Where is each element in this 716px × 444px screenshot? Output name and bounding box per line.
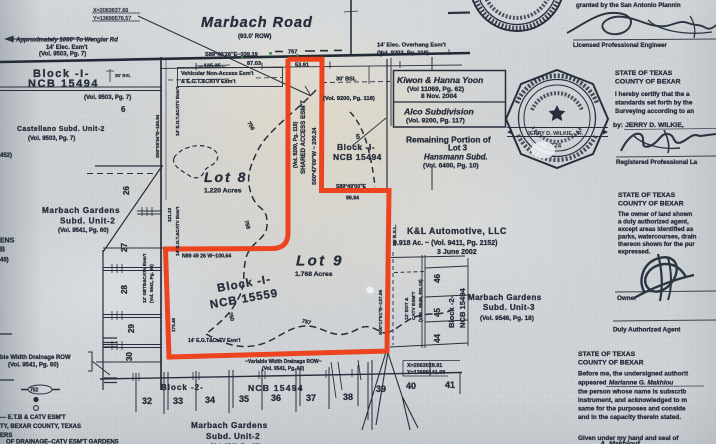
svg-text:45: 45 (433, 308, 442, 317)
svg-text:Marbach Gardens: Marbach Gardens (468, 293, 542, 302)
svg-text:STATE OF TEXAS: STATE OF TEXAS (615, 70, 673, 77)
svg-text:26: 26 (122, 186, 131, 195)
svg-text:30' BSL: 30' BSL (336, 77, 357, 83)
svg-text:a duly authorized agent,: a duly authorized agent, (618, 219, 689, 226)
svg-text:121.13: 121.13 (167, 208, 172, 222)
svg-text:46: 46 (433, 274, 442, 283)
svg-text:29: 29 (127, 324, 136, 333)
svg-text:14' Elec. Overhang Esm't: 14' Elec. Overhang Esm't (377, 43, 446, 49)
svg-text:by: JERRY D. WILKIE,: by: JERRY D. WILKIE, (613, 122, 684, 129)
svg-text:thereon shown for the pur: thereon shown for the pur (618, 241, 695, 248)
svg-text:Subd. Unit-2: Subd. Unit-2 (206, 432, 260, 441)
svg-text:granted by the San Antonio Pla: granted by the San Antonio Plannin (576, 2, 681, 9)
svg-text:except areas identified as: except areas identified as (618, 226, 694, 233)
svg-text:— E.T.B & CATV ESM'T: — E.T.B & CATV ESM'T (0, 415, 66, 421)
svg-text:53.91: 53.91 (295, 63, 309, 69)
svg-text:parks, watercourses, drain: parks, watercourses, drain (618, 234, 697, 241)
svg-text:(VOL. 9546, PG.18): (VOL. 9546, PG.18) (418, 279, 424, 322)
svg-text:Kiwon & Hanna Yoon: Kiwon & Hanna Yoon (397, 75, 483, 85)
svg-text:1.768 Acres: 1.768 Acres (295, 271, 333, 278)
svg-text:Marbach Gardens: Marbach Gardens (191, 421, 268, 430)
svg-text:Lot 3: Lot 3 (448, 144, 468, 153)
svg-text:(Vol. 9200, Pg. 117): (Vol. 9200, Pg. 117) (406, 118, 465, 125)
svg-text:(Vol. 9200, Pg. 118): (Vol. 9200, Pg. 118) (293, 121, 299, 168)
svg-text:Y=13699141.98: Y=13699141.98 (407, 370, 445, 376)
svg-text:Y=13699576.57: Y=13699576.57 (93, 16, 131, 22)
svg-text:(Vol. 9203, Pg. 118): (Vol. 9203, Pg. 118) (377, 51, 429, 57)
svg-text:Marbach Road: Marbach Road (201, 15, 313, 31)
svg-text:expressed.: expressed. (618, 249, 651, 256)
svg-text:SHARED ACCESS ESM'T: SHARED ACCESS ESM'T (300, 100, 307, 174)
svg-text:Marianne G. Makhlou: Marianne G. Makhlou (609, 380, 673, 387)
svg-text:Licensed Professional Engineer: Licensed Professional Engineer (573, 42, 667, 49)
svg-text:28: 28 (120, 285, 129, 294)
svg-text:3 June 2002: 3 June 2002 (437, 249, 477, 256)
svg-text:Hansmann Subd.: Hansmann Subd. (424, 153, 488, 162)
svg-text:452): 452) (0, 153, 12, 159)
svg-text:X=2063637.66: X=2063637.66 (93, 8, 128, 14)
svg-text:S00°47'09"W ~ 200.24: S00°47'09"W ~ 200.24 (312, 127, 318, 185)
svg-text:Registered Professional La: Registered Professional La (616, 159, 698, 166)
svg-text:48): 48) (0, 258, 9, 264)
svg-text:instrument, and acknowledged t: instrument, and acknowledged to m (578, 397, 687, 404)
svg-text:Block -I-: Block -I- (337, 142, 375, 152)
svg-text:K&L Automotive, LLC: K&L Automotive, LLC (407, 226, 507, 236)
svg-text:the person whose name is subsc: the person whose name is subscrib (578, 389, 686, 396)
svg-text:757: 757 (288, 50, 297, 56)
svg-text:Subd. Unit-2: Subd. Unit-2 (60, 217, 115, 226)
svg-text:COUNTY OF BEXAR: COUNTY OF BEXAR (615, 79, 681, 86)
svg-text:39: 39 (376, 384, 386, 394)
svg-text:35: 35 (239, 394, 249, 404)
svg-text:Block -2-: Block -2- (161, 383, 204, 392)
svg-text:752: 752 (30, 388, 39, 394)
svg-text:(Vol. 9541, Pg. 60): (Vol. 9541, Pg. 60) (58, 228, 109, 234)
svg-text:14' E.G.T.&CATV Esm't: 14' E.G.T.&CATV Esm't (175, 86, 180, 136)
svg-text:12' EGT &: 12' EGT & (404, 297, 410, 320)
svg-text:Lot 8: Lot 8 (204, 169, 247, 185)
svg-text:(93.0' ROW): (93.0' ROW) (238, 34, 271, 40)
svg-text:Marbach Gardens: Marbach Gardens (42, 206, 120, 215)
svg-text:(Vol. 9541, Pg. 60): (Vol. 9541, Pg. 60) (8, 363, 59, 369)
svg-text:14' E.G.T.&CATV Esm't: 14' E.G.T.&CATV Esm't (175, 206, 180, 256)
svg-text:(Vol. 9503, Pg. 7): (Vol. 9503, Pg. 7) (84, 95, 131, 101)
svg-text:ENS: ENS (0, 238, 15, 245)
svg-text:33: 33 (173, 396, 183, 406)
svg-text:(Vol. 9503, Pg. 7): (Vol. 9503, Pg. 7) (28, 136, 75, 142)
svg-text:87.03: 87.03 (247, 61, 261, 67)
svg-text:41: 41 (445, 380, 455, 390)
svg-text:standards set forth by the: standards set forth by the (615, 100, 693, 107)
svg-text:~Variable Width Drainage ROW~: ~Variable Width Drainage ROW~ (245, 359, 322, 365)
svg-text:32: 32 (142, 396, 152, 406)
svg-text:Alco Subdivision: Alco Subdivision (403, 107, 474, 117)
svg-text:Owner: Owner (617, 295, 637, 302)
svg-text:Before me, the undersigned aut: Before me, the undersigned authorit (578, 371, 689, 378)
svg-text:(Vol. 9541, Pg. 60): (Vol. 9541, Pg. 60) (149, 264, 154, 303)
svg-text:OF DRAINAGE–CATV ESM'T GARDEN: OF DRAINAGE–CATV ESM'T GARDENS (6, 440, 119, 444)
svg-text:14' E.G.T&CaTV Esm't: 14' E.G.T&CaTV Esm't (188, 338, 241, 344)
svg-text:(Vol. 6400, Pg. 10): (Vol. 6400, Pg. 10) (423, 163, 479, 170)
svg-text:ERS: ERS (0, 433, 12, 439)
svg-text:(Vol. 9200, Pg. 118): (Vol. 9200, Pg. 118) (323, 96, 375, 102)
svg-text:30: 30 (125, 352, 134, 361)
svg-text:S89°49'26"E~339.19: S89°49'26"E~339.19 (205, 52, 258, 58)
svg-text:Castellano Subd. Unit-2: Castellano Subd. Unit-2 (17, 126, 105, 133)
svg-text:99.84: 99.84 (346, 196, 359, 202)
svg-text:→135.35←: →135.35← (198, 64, 226, 70)
svg-text:37: 37 (306, 393, 316, 403)
svg-text:12' GETB&CATV Esm't: 12' GETB&CATV Esm't (142, 253, 147, 303)
svg-text:(Vol. 9503, Pg. 7): (Vol. 9503, Pg. 7) (39, 52, 86, 58)
svg-text:S00°17'51"E~137.96: S00°17'51"E~137.96 (378, 289, 384, 335)
svg-text:and in the capacity therein st: and in the capacity therein stated. (578, 414, 681, 421)
svg-text:(Vol 11069, Pg. 62): (Vol 11069, Pg. 62) (407, 86, 464, 93)
svg-text:(Vol. 9546, Pg. 18): (Vol. 9546, Pg. 18) (480, 315, 534, 322)
svg-text:36: 36 (271, 393, 281, 403)
svg-text:I hereby certify that the a: I hereby certify that the a (615, 91, 690, 98)
svg-text:appeared: appeared (578, 380, 607, 387)
svg-text:8 Nov. 2004: 8 Nov. 2004 (421, 93, 457, 100)
svg-text:1.220 Acres: 1.220 Acres (204, 188, 242, 195)
svg-text:Duly Authorized Agent: Duly Authorized Agent (613, 327, 681, 334)
svg-text:JERRY D. WILKIE, JR.: JERRY D. WILKIE, JR. (527, 131, 584, 137)
svg-text:The owner of land shown: The owner of land shown (618, 211, 692, 218)
svg-text:NCB 15494: NCB 15494 (28, 78, 99, 90)
svg-text:STATE OF TEXAS: STATE OF TEXAS (578, 351, 636, 358)
svg-text:0.918 Ac. ~ (Vol. 9411, Pg. 21: 0.918 Ac. ~ (Vol. 9411, Pg. 2152) (393, 240, 497, 247)
svg-text:COUNTY OF BEXAR: COUNTY OF BEXAR (618, 201, 684, 208)
svg-text:34: 34 (205, 395, 215, 405)
svg-text:173.48: 173.48 (171, 318, 176, 332)
svg-text:TY, BEXAR COUNTY, TEXAS: TY, BEXAR COUNTY, TEXAS (0, 424, 81, 430)
svg-text:Lot 9: Lot 9 (296, 253, 344, 270)
svg-text:Block -2-: Block -2- (447, 295, 456, 328)
svg-text:14' Elec. Esm't: 14' Elec. Esm't (46, 45, 88, 51)
svg-text:Surveying according to an: Surveying according to an (615, 108, 694, 115)
svg-text:6: 6 (121, 105, 126, 114)
svg-text:Approximately 1000' To Wengler: Approximately 1000' To Wengler Rd (15, 38, 118, 44)
svg-text:X=2063028.91: X=2063028.91 (407, 363, 442, 369)
svg-text:N89 49 26 W~100.64: N89 49 26 W~100.64 (182, 254, 231, 260)
svg-text:same for the purposes and cons: same for the purposes and conside (578, 406, 686, 413)
svg-text:30' BSL: 30' BSL (115, 73, 131, 78)
svg-text:ble Width Drainage ROW: ble Width Drainage ROW (0, 355, 71, 361)
svg-text:S00°05'34"E~159.94: S00°05'34"E~159.94 (155, 114, 160, 158)
svg-text:NCB 15494: NCB 15494 (333, 152, 382, 162)
svg-text:38: 38 (343, 392, 353, 402)
svg-text:27: 27 (120, 243, 129, 252)
svg-text:& E.G.T.&CATV Esm't: & E.G.T.&CATV Esm't (181, 79, 236, 85)
svg-text:COUNTY OF BEXAR: COUNTY OF BEXAR (578, 360, 644, 367)
svg-text:NCB 15494: NCB 15494 (458, 288, 467, 328)
svg-text:STATE OF TEXAS: STATE OF TEXAS (618, 192, 676, 199)
svg-text:NCB 15494: NCB 15494 (248, 383, 304, 393)
svg-text:(Vol. 9541, Pg. 60): (Vol. 9541, Pg. 60) (262, 366, 304, 372)
svg-text:Subd. Unit-3: Subd. Unit-3 (483, 303, 535, 312)
svg-text:40: 40 (406, 381, 416, 391)
svg-text:44: 44 (433, 334, 442, 343)
svg-text:S89°49'00"E: S89°49'00"E (336, 184, 367, 190)
svg-text:Vehicular Non-Access Esm't: Vehicular Non-Access Esm't (181, 71, 254, 77)
svg-text:B: B (0, 247, 5, 254)
svg-text:5: 5 (356, 134, 360, 141)
svg-text:CATV ESM'T: CATV ESM'T (411, 291, 417, 320)
